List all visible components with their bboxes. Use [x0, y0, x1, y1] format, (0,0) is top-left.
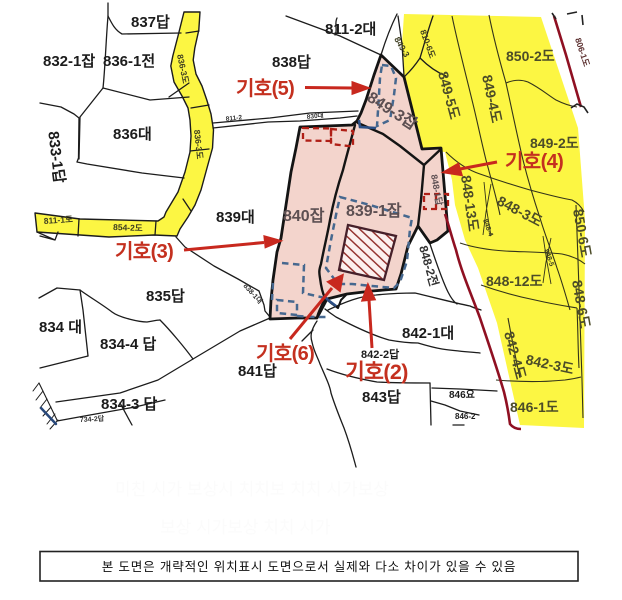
svg-text:846-1도: 846-1도	[510, 399, 559, 415]
svg-text:850-2도: 850-2도	[506, 48, 555, 64]
svg-text:842-1대: 842-1대	[402, 325, 454, 342]
svg-text:848-12도: 848-12도	[486, 273, 543, 289]
svg-text:기호(5): 기호(5)	[236, 77, 294, 100]
svg-text:834-4 답: 834-4 답	[100, 335, 157, 353]
svg-text:832-1잡: 832-1잡	[43, 52, 95, 70]
svg-text:811-1도: 811-1도	[43, 214, 73, 226]
svg-text:840잡: 840잡	[283, 207, 325, 225]
svg-text:839-1잡: 839-1잡	[346, 202, 402, 220]
svg-text:836-1전: 836-1전	[103, 53, 155, 70]
svg-text:기호(2): 기호(2)	[345, 360, 408, 384]
svg-text:기호(6): 기호(6)	[256, 342, 314, 365]
svg-text:보상 시가보상 치치 시가: 보상 시가보상 치치 시가	[160, 518, 331, 537]
svg-text:842-2답: 842-2답	[361, 347, 399, 361]
svg-text:본 도면은 개략적인 위치표시 도면으로서 실제와 다소 차: 본 도면은 개략적인 위치표시 도면으로서 실제와 다소 차이가 있을 수 있음	[102, 560, 517, 574]
svg-text:838답: 838답	[272, 53, 311, 71]
svg-text:854-2도: 854-2도	[113, 222, 143, 233]
svg-text:839대: 839대	[216, 209, 255, 226]
svg-text:849-2도: 849-2도	[530, 135, 579, 151]
svg-text:843답: 843답	[362, 388, 401, 406]
svg-text:834-3 답: 834-3 답	[101, 395, 158, 413]
svg-text:846요: 846요	[449, 389, 475, 401]
svg-text:미친 시가 보상시 치치보 치치 시가보상: 미친 시가 보상시 치치보 치치 시가보상	[115, 480, 389, 499]
svg-text:834 대: 834 대	[39, 319, 82, 336]
svg-text:811-2대: 811-2대	[325, 21, 376, 38]
svg-text:846-2: 846-2	[455, 412, 476, 421]
svg-text:835답: 835답	[146, 287, 185, 305]
svg-text:837답: 837답	[131, 13, 170, 31]
svg-text:기호(4): 기호(4)	[505, 150, 563, 173]
svg-text:841답: 841답	[238, 362, 277, 380]
svg-text:836대: 836대	[113, 126, 152, 143]
svg-text:기호(3): 기호(3)	[115, 240, 173, 263]
